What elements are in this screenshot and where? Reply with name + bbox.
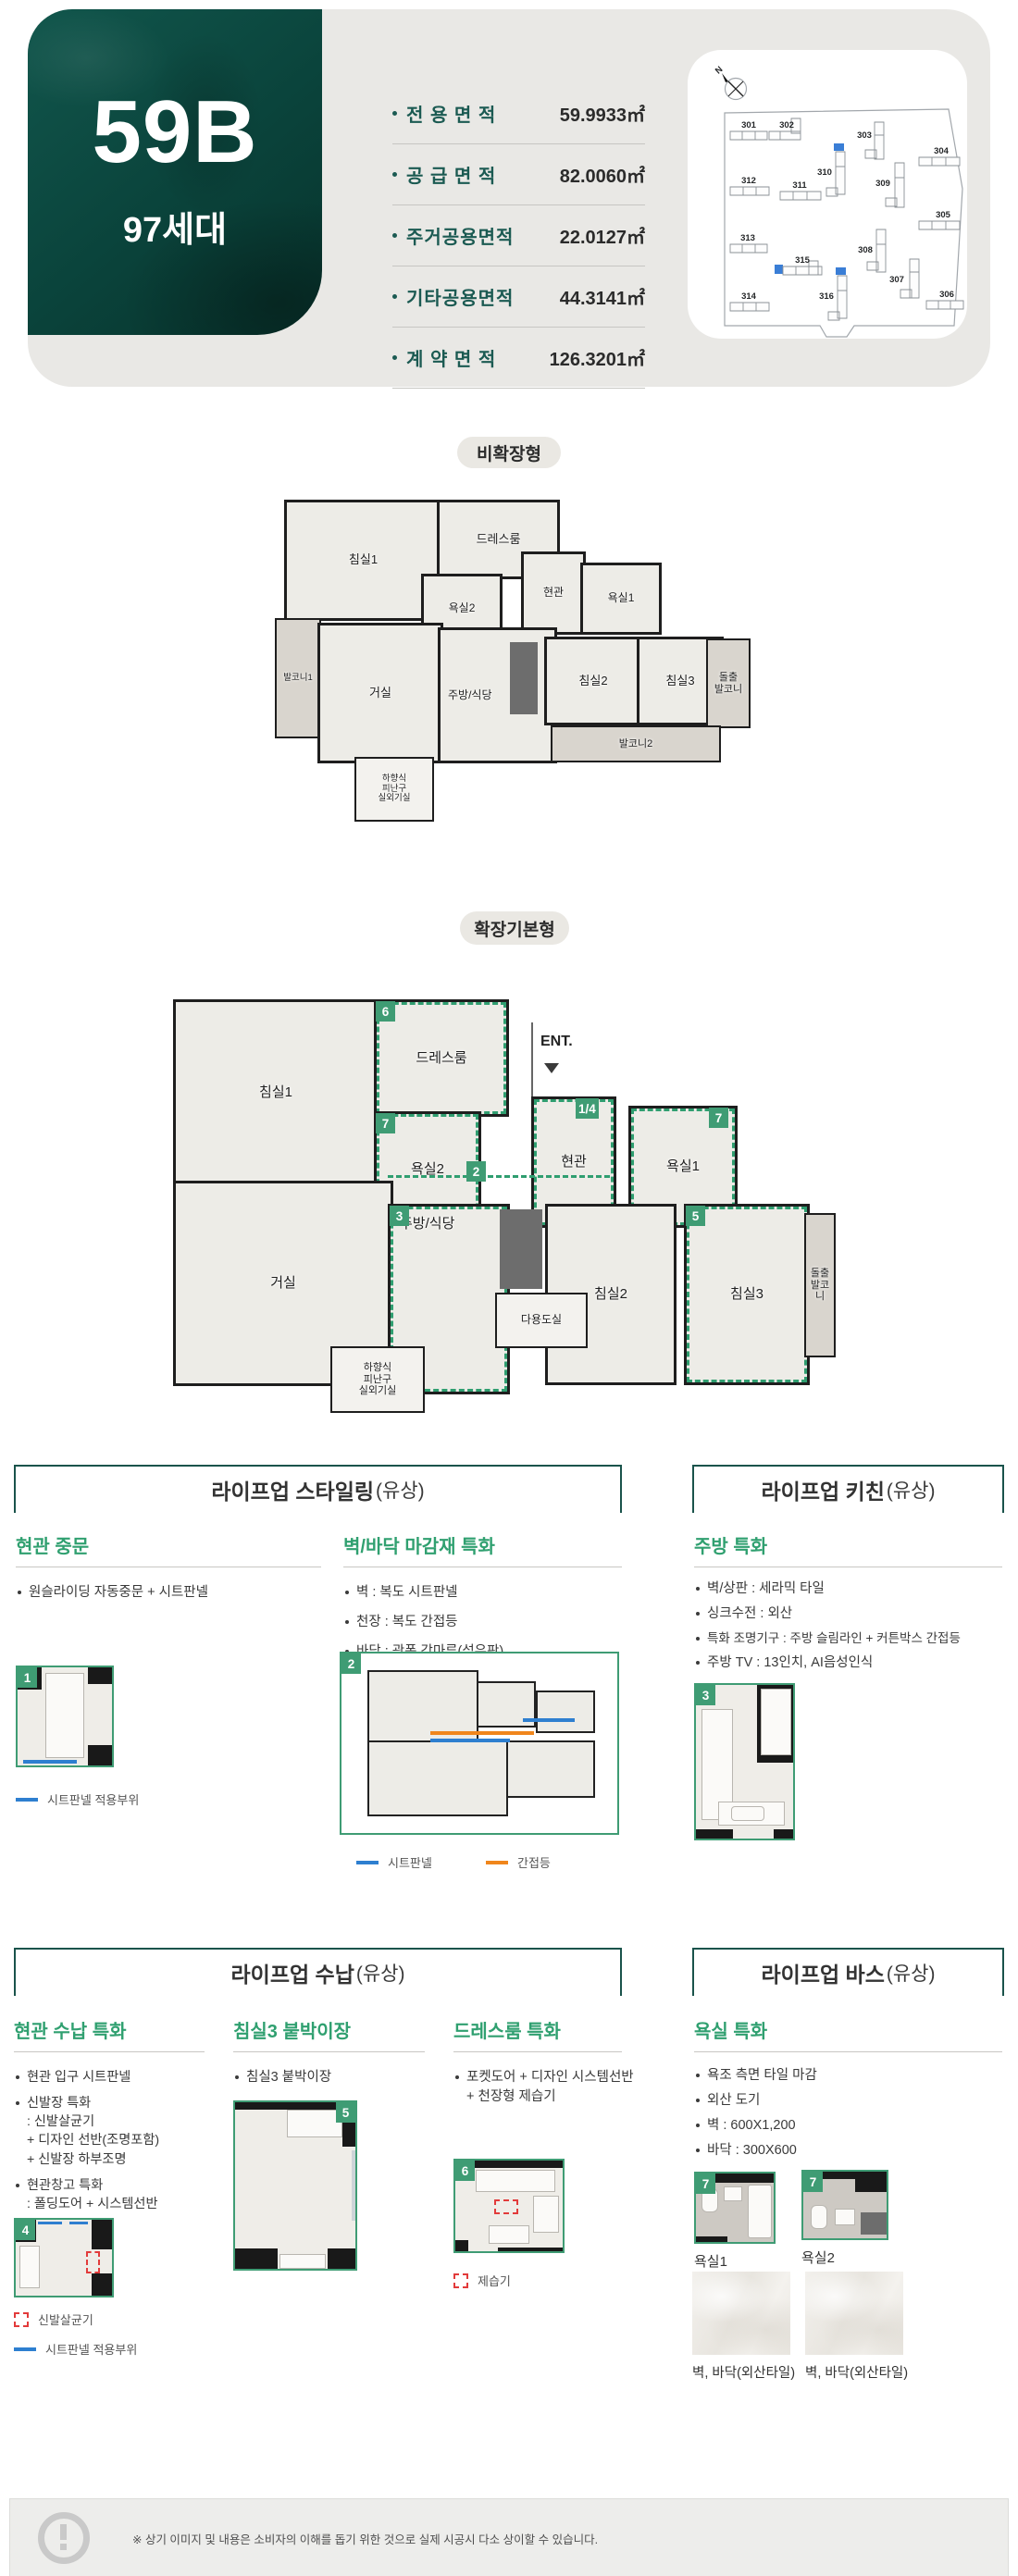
thumb-door: 1 xyxy=(16,1666,114,1767)
room-kitchen: 주방/식당 xyxy=(438,627,557,763)
area-label: 기타공용면적 xyxy=(406,283,560,310)
section-header: 라이프업 스타일링 (유상) xyxy=(14,1465,622,1513)
footer-disclaimer: ※ 상기 이미지 및 내용은 소비자의 이해를 돕기 위한 것으로 실제 시공시… xyxy=(9,2498,1009,2576)
corridor-dash-line xyxy=(388,1175,610,1178)
thumb-shelf xyxy=(489,2225,529,2244)
option-badge-1-4: 1/4 xyxy=(576,1098,599,1119)
bullet-dot-icon xyxy=(696,1637,700,1641)
site-map-card: N 301 302 303 304 310 312 311 309 305 31… xyxy=(688,50,967,339)
thumb-decor xyxy=(45,1673,84,1758)
site-building-308: 308 xyxy=(858,229,886,272)
thumb-sink xyxy=(731,1806,764,1821)
thumb-decor xyxy=(92,2220,114,2249)
bath2-label: 욕실2 xyxy=(801,2248,835,2267)
red-dash-icon xyxy=(14,2312,29,2327)
thumb-decor xyxy=(92,2273,114,2297)
divider xyxy=(14,2051,205,2052)
thumb-decor xyxy=(696,2236,727,2244)
bath1-label: 욕실1 xyxy=(694,2251,727,2271)
legend-label: 신발살균기 xyxy=(38,2310,93,2328)
bullet-text: 벽 : 600X1,200 xyxy=(707,2116,796,2136)
blue-line-icon xyxy=(16,1798,38,1802)
plan-basic-title: 비확장형 xyxy=(477,440,541,465)
room-escape: 하향식 피난구 실외기실 xyxy=(330,1346,425,1413)
bullet-text: 싱크수전 : 외산 xyxy=(707,1604,792,1624)
room-balcony2: 발코니2 xyxy=(551,725,721,762)
room-utility: 다용도실 xyxy=(495,1293,588,1348)
bullet-dot-icon xyxy=(345,1591,349,1594)
site-map: N 301 302 303 304 310 312 311 309 305 31… xyxy=(688,50,967,339)
thumb-badge-7: 7 xyxy=(696,2173,715,2194)
thumb-decor xyxy=(19,2246,40,2288)
svg-text:309: 309 xyxy=(875,179,890,189)
divider xyxy=(694,2051,1002,2052)
thumb-finish-plan: 2 xyxy=(340,1652,619,1835)
legend-light: 간접등 xyxy=(486,1853,551,1871)
room-escape: 하향식 피난구 실외기실 xyxy=(354,757,434,822)
thumb-window xyxy=(352,2150,357,2221)
area-row: 기타공용면적 44.3141㎡ xyxy=(392,266,645,328)
bullet-list: 포켓도어 + 디자인 시스템선반 + 천장형 제습기 xyxy=(453,2068,639,2107)
bullet-dot-icon xyxy=(16,2184,19,2187)
room-bath1: 욕실1 xyxy=(580,563,662,635)
site-building-316: 316 xyxy=(819,267,847,320)
area-row: 전 용 면 적 59.9933㎡ xyxy=(392,83,645,144)
bullet-list: 벽/상판 : 세라믹 타일 싱크수전 : 외산 특화 조명기구 : 주방 슬림라… xyxy=(694,1579,1004,1673)
bullet-item: 싱크수전 : 외산 xyxy=(694,1604,1004,1624)
site-building-313: 313 xyxy=(730,233,767,253)
option-badge-7b: 7 xyxy=(709,1108,728,1128)
thumb-bath2: 7 xyxy=(801,2170,888,2240)
bullet-item: 욕조 측면 타일 마감 xyxy=(694,2066,1002,2086)
thumb-light-line xyxy=(430,1731,534,1735)
bullet-dot-icon xyxy=(392,355,397,360)
thumb-sheet-line xyxy=(430,1739,510,1742)
thumb-sterilizer-area xyxy=(86,2251,100,2273)
bullet-item: 주방 TV : 13인치, AI음성인식 xyxy=(694,1653,1004,1673)
area-row: 계 약 면 적 126.3201㎡ xyxy=(392,328,645,389)
alert-icon xyxy=(38,2512,90,2564)
section-title-suffix: (유상) xyxy=(376,1476,425,1504)
svg-text:301: 301 xyxy=(741,120,757,130)
thumb-decor xyxy=(498,2248,565,2253)
entrance-label: ENT. xyxy=(540,1034,573,1050)
bullet-list: 욕조 측면 타일 마감 외산 도기 벽 : 600X1,200 바닥 : 300… xyxy=(694,2066,1002,2161)
svg-text:313: 313 xyxy=(740,233,755,243)
svg-text:312: 312 xyxy=(741,176,756,186)
bullet-item: 특화 조명기구 : 주방 슬림라인 + 커튼박스 간접등 xyxy=(694,1629,1004,1648)
room-entry: 현관 xyxy=(521,551,586,635)
site-building-314: 314 xyxy=(730,291,769,311)
divider xyxy=(16,1567,321,1567)
svg-text:302: 302 xyxy=(779,120,794,130)
site-building-304: 304 xyxy=(919,146,960,166)
thumb-badge-6: 6 xyxy=(455,2161,475,2181)
area-value: 126.3201㎡ xyxy=(550,344,645,371)
plan-basic-pill: 비확장형 xyxy=(457,437,561,468)
bullet-dot-icon xyxy=(235,2075,239,2079)
subsection-title-door: 현관 중문 xyxy=(16,1531,89,1558)
legend-sheet-panel: 시트판넬 적용부위 xyxy=(14,2340,137,2358)
option-badge-6: 6 xyxy=(376,1001,395,1022)
bullet-text: 원슬라이딩 자동중문 + 시트판넬 xyxy=(29,1583,208,1603)
kitchen-core-block xyxy=(510,642,538,714)
svg-text:306: 306 xyxy=(939,290,954,300)
section-title: 라이프업 수납 xyxy=(231,1957,354,1988)
svg-text:305: 305 xyxy=(936,210,951,220)
compass-icon: N xyxy=(714,65,747,100)
tile2-label: 벽, 바닥(외산타일) xyxy=(805,2362,908,2382)
blue-line-icon xyxy=(14,2347,36,2351)
thumb-badge-4: 4 xyxy=(16,2220,35,2240)
room-bed2: 침실2 xyxy=(544,637,642,725)
thumb-sheet-line xyxy=(523,1718,575,1722)
section-lifeup-bath: 라이프업 바스 (유상) 욕실 특화 욕조 측면 타일 마감 외산 도기 벽 :… xyxy=(692,1948,1004,2383)
bullet-text: 외산 도기 xyxy=(707,2091,760,2111)
subsection-title-kitchen: 주방 특화 xyxy=(694,1531,767,1558)
thumb-sink xyxy=(724,2186,742,2201)
thumb-decor xyxy=(855,2172,888,2192)
room-jut-balcony: 돌출 발코니 xyxy=(706,638,751,728)
thumb-decor xyxy=(536,1690,595,1733)
unit-count: 97세대 xyxy=(123,201,227,252)
north-label: N xyxy=(714,65,726,77)
bullet-text: 바닥 : 300X600 xyxy=(707,2141,797,2161)
room-bed1: 침실1 xyxy=(173,999,379,1186)
thumb-entry-storage: 4 xyxy=(14,2218,114,2297)
thumb-toilet xyxy=(811,2205,827,2229)
room-bed3: 침실3 xyxy=(684,1204,810,1385)
thumb-badge-7b: 7 xyxy=(803,2172,823,2192)
bullet-dot-icon xyxy=(16,2075,19,2079)
option-badge-5: 5 xyxy=(686,1206,705,1226)
thumb-sheet-line xyxy=(23,1760,77,1764)
tile-swatch-2 xyxy=(805,2272,903,2355)
thumb-kitchen: 3 xyxy=(694,1683,795,1840)
bullet-item: 벽 : 600X1,200 xyxy=(694,2116,1002,2136)
thumb-badge-3: 3 xyxy=(696,1685,715,1705)
bullet-item: 현관 입구 시트판넬 xyxy=(14,2068,225,2087)
legend-label: 제습기 xyxy=(478,2272,511,2289)
site-building-303: 303 xyxy=(857,122,884,159)
bullet-dot-icon xyxy=(455,2075,459,2079)
bullet-dot-icon xyxy=(345,1620,349,1624)
thumb-dehumidifier-area xyxy=(494,2199,518,2214)
thumb-decor xyxy=(328,2248,357,2271)
room-balcony1: 발코니1 xyxy=(275,618,321,738)
area-label: 전 용 면 적 xyxy=(406,100,560,127)
floorplan-basic: 침실1 드레스룸 욕실2 현관 욕실1 발코니1 거실 주방/식당 침실2 침실… xyxy=(273,489,740,794)
thumb-badge-1: 1 xyxy=(18,1667,37,1688)
bullet-item: 천장 : 복도 간접등 xyxy=(343,1613,622,1632)
bullet-text: 특화 조명기구 : 주방 슬림라인 + 커튼박스 간접등 xyxy=(707,1629,961,1648)
red-dash-icon xyxy=(453,2273,468,2288)
section-title-suffix: (유상) xyxy=(887,1476,936,1504)
site-building-309: 309 xyxy=(875,163,904,207)
bullet-dot-icon xyxy=(16,2101,19,2105)
area-value: 22.0127㎡ xyxy=(560,222,645,249)
thumb-badge-2: 2 xyxy=(341,1653,361,1674)
thumb-sink xyxy=(835,2209,855,2225)
section-header: 라이프업 키친 (유상) xyxy=(692,1465,1004,1513)
bullet-text: 천장 : 복도 간접등 xyxy=(356,1613,458,1632)
section-title: 라이프업 키친 xyxy=(762,1474,885,1505)
unit-code: 59B xyxy=(92,88,257,177)
bullet-text: 현관창고 특화 : 폴딩도어 + 시스템선반 xyxy=(27,2176,158,2213)
svg-text:307: 307 xyxy=(889,275,904,285)
bullet-text: 벽/상판 : 세라믹 타일 xyxy=(707,1579,825,1599)
thumb-decor xyxy=(367,1740,508,1816)
floorplan-expanded: 침실1 드레스룸 욕실2 현관 욕실1 거실 주방/식당 침실2 침실3 돌출 … xyxy=(159,985,832,1397)
area-label: 공 급 면 적 xyxy=(406,161,560,188)
svg-text:310: 310 xyxy=(817,167,832,178)
bullet-text: 욕조 측면 타일 마감 xyxy=(707,2066,817,2086)
bullet-list: 원슬라이딩 자동중문 + 시트판넬 xyxy=(16,1583,321,1603)
bullet-text: 현관 입구 시트판넬 xyxy=(27,2068,130,2087)
plan-expanded-title: 확장기본형 xyxy=(474,916,554,941)
section-header: 라이프업 바스 (유상) xyxy=(692,1948,1004,1996)
thumb-decor xyxy=(696,1829,733,1840)
section-title-suffix: (유상) xyxy=(356,1959,405,1987)
section-lifeup-storage: 라이프업 수납 (유상) 현관 수납 특화 현관 입구 시트판넬 신발장 특화 … xyxy=(14,1948,622,2355)
bullet-dot-icon xyxy=(696,1587,700,1591)
thumb-sheet-line xyxy=(38,2222,62,2224)
site-building-315: 315 xyxy=(775,255,822,275)
thumb-decor xyxy=(235,2248,278,2271)
bullet-text: 신발장 특화 : 신발살균기 + 디자인 선반(조명포함) + 신발장 하부조명 xyxy=(27,2094,159,2169)
thumb-decor xyxy=(279,2254,326,2269)
option-badge-3: 3 xyxy=(390,1206,409,1226)
bullet-list: 벽 : 복도 시트판넬 천장 : 복도 간접등 바닥 : 광폭 강마루(섬유판) xyxy=(343,1583,622,1662)
site-building-307: 307 xyxy=(889,259,919,298)
bullet-dot-icon xyxy=(696,2149,700,2152)
option-badge-7: 7 xyxy=(376,1113,395,1133)
bullet-item: 원슬라이딩 자동중문 + 시트판넬 xyxy=(16,1583,321,1603)
option-badge-2: 2 xyxy=(466,1161,486,1182)
section-lifeup-styling: 라이프업 스타일링 (유상) 현관 중문 원슬라이딩 자동중문 + 시트판넬 1… xyxy=(14,1465,622,1890)
svg-text:308: 308 xyxy=(858,245,873,255)
legend-sheet: 시트판넬 xyxy=(356,1853,432,1871)
svg-text:311: 311 xyxy=(792,180,807,191)
legend-dehumidifier: 제습기 xyxy=(453,2272,511,2289)
thumb-decor xyxy=(506,1740,595,1798)
site-building-305: 305 xyxy=(919,210,960,229)
thumb-tub xyxy=(748,2185,772,2238)
bullet-list: 현관 입구 시트판넬 신발장 특화 : 신발살균기 + 디자인 선반(조명포함)… xyxy=(14,2068,225,2213)
thumb-decor xyxy=(761,1689,791,1755)
svg-text:304: 304 xyxy=(934,146,950,156)
legend-label: 간접등 xyxy=(517,1853,551,1871)
orange-line-icon xyxy=(486,1861,508,1864)
room-jut-balcony: 돌출 발코니 xyxy=(804,1213,836,1357)
bullet-item: 벽 : 복도 시트판넬 xyxy=(343,1583,622,1603)
legend-label: 시트판넬 적용부위 xyxy=(45,2340,137,2358)
site-building-310: 310 xyxy=(817,143,845,196)
thumb-dressroom: 6 xyxy=(453,2159,565,2253)
site-building-302: 302 xyxy=(769,118,801,140)
area-row: 공 급 면 적 82.0060㎡ xyxy=(392,144,645,205)
bullet-dot-icon xyxy=(696,2099,700,2102)
bullet-dot-icon xyxy=(696,2124,700,2127)
legend-label: 시트판넬 적용부위 xyxy=(47,1790,139,1808)
bullet-dot-icon xyxy=(18,1591,21,1594)
entrance-line xyxy=(531,1022,533,1096)
bullet-item: 신발장 특화 : 신발살균기 + 디자인 선반(조명포함) + 신발장 하부조명 xyxy=(14,2094,225,2169)
bullet-text: 주방 TV : 13인치, AI음성인식 xyxy=(707,1653,873,1673)
kitchen-core-block xyxy=(500,1209,542,1289)
section-title: 라이프업 바스 xyxy=(762,1957,885,1988)
area-value: 82.0060㎡ xyxy=(560,161,645,188)
svg-text:314: 314 xyxy=(741,291,757,302)
bullet-dot-icon xyxy=(392,172,397,177)
bullet-dot-icon xyxy=(696,2074,700,2077)
thumb-decor xyxy=(455,2240,468,2253)
svg-text:316: 316 xyxy=(819,291,834,302)
legend-sterilizer: 신발살균기 xyxy=(14,2310,93,2328)
area-value: 59.9933㎡ xyxy=(560,100,645,127)
subsection-title-entry-storage: 현관 수납 특화 xyxy=(14,2016,127,2043)
brochure-page: 전 용 면 적 59.9933㎡ 공 급 면 적 82.0060㎡ 주거공용면적… xyxy=(0,0,1018,2576)
subsection-title-closet: 침실3 붙박이장 xyxy=(233,2016,351,2043)
bullet-item: 침실3 붙박이장 xyxy=(233,2068,425,2087)
area-label: 주거공용면적 xyxy=(406,222,560,249)
area-row: 주거공용면적 22.0127㎡ xyxy=(392,205,645,266)
site-building-301: 301 xyxy=(730,120,767,140)
thumb-decor xyxy=(861,2212,887,2235)
thumb-badge-5: 5 xyxy=(336,2102,355,2123)
thumb-closet: 5 xyxy=(233,2100,357,2271)
section-header: 라이프업 수납 (유상) xyxy=(14,1948,622,1996)
subsection-title-bath: 욕실 특화 xyxy=(694,2016,767,2043)
bullet-item: 바닥 : 300X600 xyxy=(694,2141,1002,2161)
area-info-list: 전 용 면 적 59.9933㎡ 공 급 면 적 82.0060㎡ 주거공용면적… xyxy=(392,83,645,389)
bullet-text: 침실3 붙박이장 xyxy=(246,2068,331,2087)
bullet-dot-icon xyxy=(392,233,397,238)
bullet-dot-icon xyxy=(392,294,397,299)
room-living: 거실 xyxy=(317,623,443,763)
section-title: 라이프업 스타일링 xyxy=(211,1474,374,1505)
bullet-text: 포켓도어 + 디자인 시스템선반 + 천장형 제습기 xyxy=(466,2068,634,2107)
site-building-306: 306 xyxy=(926,290,963,309)
divider xyxy=(694,1567,1002,1567)
subsection-title-dressroom: 드레스룸 특화 xyxy=(453,2016,561,2043)
thumb-decor xyxy=(774,1829,795,1840)
thumb-shelf xyxy=(533,2196,559,2233)
bullet-item: 포켓도어 + 디자인 시스템선반 + 천장형 제습기 xyxy=(453,2068,639,2107)
divider xyxy=(233,2051,425,2052)
thumb-shelf xyxy=(476,2170,555,2192)
bullet-list: 침실3 붙박이장 xyxy=(233,2068,425,2087)
thumb-closet-unit xyxy=(287,2110,342,2137)
thumb-decor xyxy=(88,1745,112,1765)
entrance-arrow-icon xyxy=(544,1063,559,1073)
bullet-item: 외산 도기 xyxy=(694,2091,1002,2111)
thumb-decor xyxy=(88,1667,112,1684)
svg-text:315: 315 xyxy=(795,255,811,266)
tile-swatch-1 xyxy=(692,2272,790,2355)
subsection-title-finish: 벽/바닥 마감재 특화 xyxy=(343,1531,495,1558)
bullet-dot-icon xyxy=(696,1612,700,1616)
divider xyxy=(453,2051,622,2052)
site-building-311: 311 xyxy=(780,180,821,200)
legend-sheet-panel: 시트판넬 적용부위 xyxy=(16,1790,139,1808)
area-label: 계 약 면 적 xyxy=(406,344,550,371)
legend-label: 시트판넬 xyxy=(388,1853,432,1871)
bullet-item: 현관창고 특화 : 폴딩도어 + 시스템선반 xyxy=(14,2176,225,2213)
section-lifeup-kitchen: 라이프업 키친 (유상) 주방 특화 벽/상판 : 세라믹 타일 싱크수전 : … xyxy=(692,1465,1004,1853)
tile1-label: 벽, 바닥(외산타일) xyxy=(692,2362,795,2382)
thumb-sheet-line xyxy=(69,2222,88,2224)
plan-expanded-pill: 확장기본형 xyxy=(460,911,569,945)
section-title-suffix: (유상) xyxy=(887,1959,936,1987)
bullet-dot-icon xyxy=(392,111,397,116)
divider xyxy=(343,1567,622,1567)
bullet-text: 벽 : 복도 시트판넬 xyxy=(356,1583,458,1603)
disclaimer-text: ※ 상기 이미지 및 내용은 소비자의 이해를 돕기 위한 것으로 실제 시공시… xyxy=(132,2499,598,2576)
room-bed1: 침실1 xyxy=(284,500,442,621)
hero-unit-banner: 59B 97세대 xyxy=(28,9,322,335)
svg-text:303: 303 xyxy=(857,130,872,141)
bullet-dot-icon xyxy=(696,1661,700,1665)
area-value: 44.3141㎡ xyxy=(560,283,645,310)
thumb-bath1: 7 xyxy=(694,2172,776,2244)
bullet-item: 벽/상판 : 세라믹 타일 xyxy=(694,1579,1004,1599)
blue-line-icon xyxy=(356,1861,379,1864)
site-building-312: 312 xyxy=(730,176,769,195)
